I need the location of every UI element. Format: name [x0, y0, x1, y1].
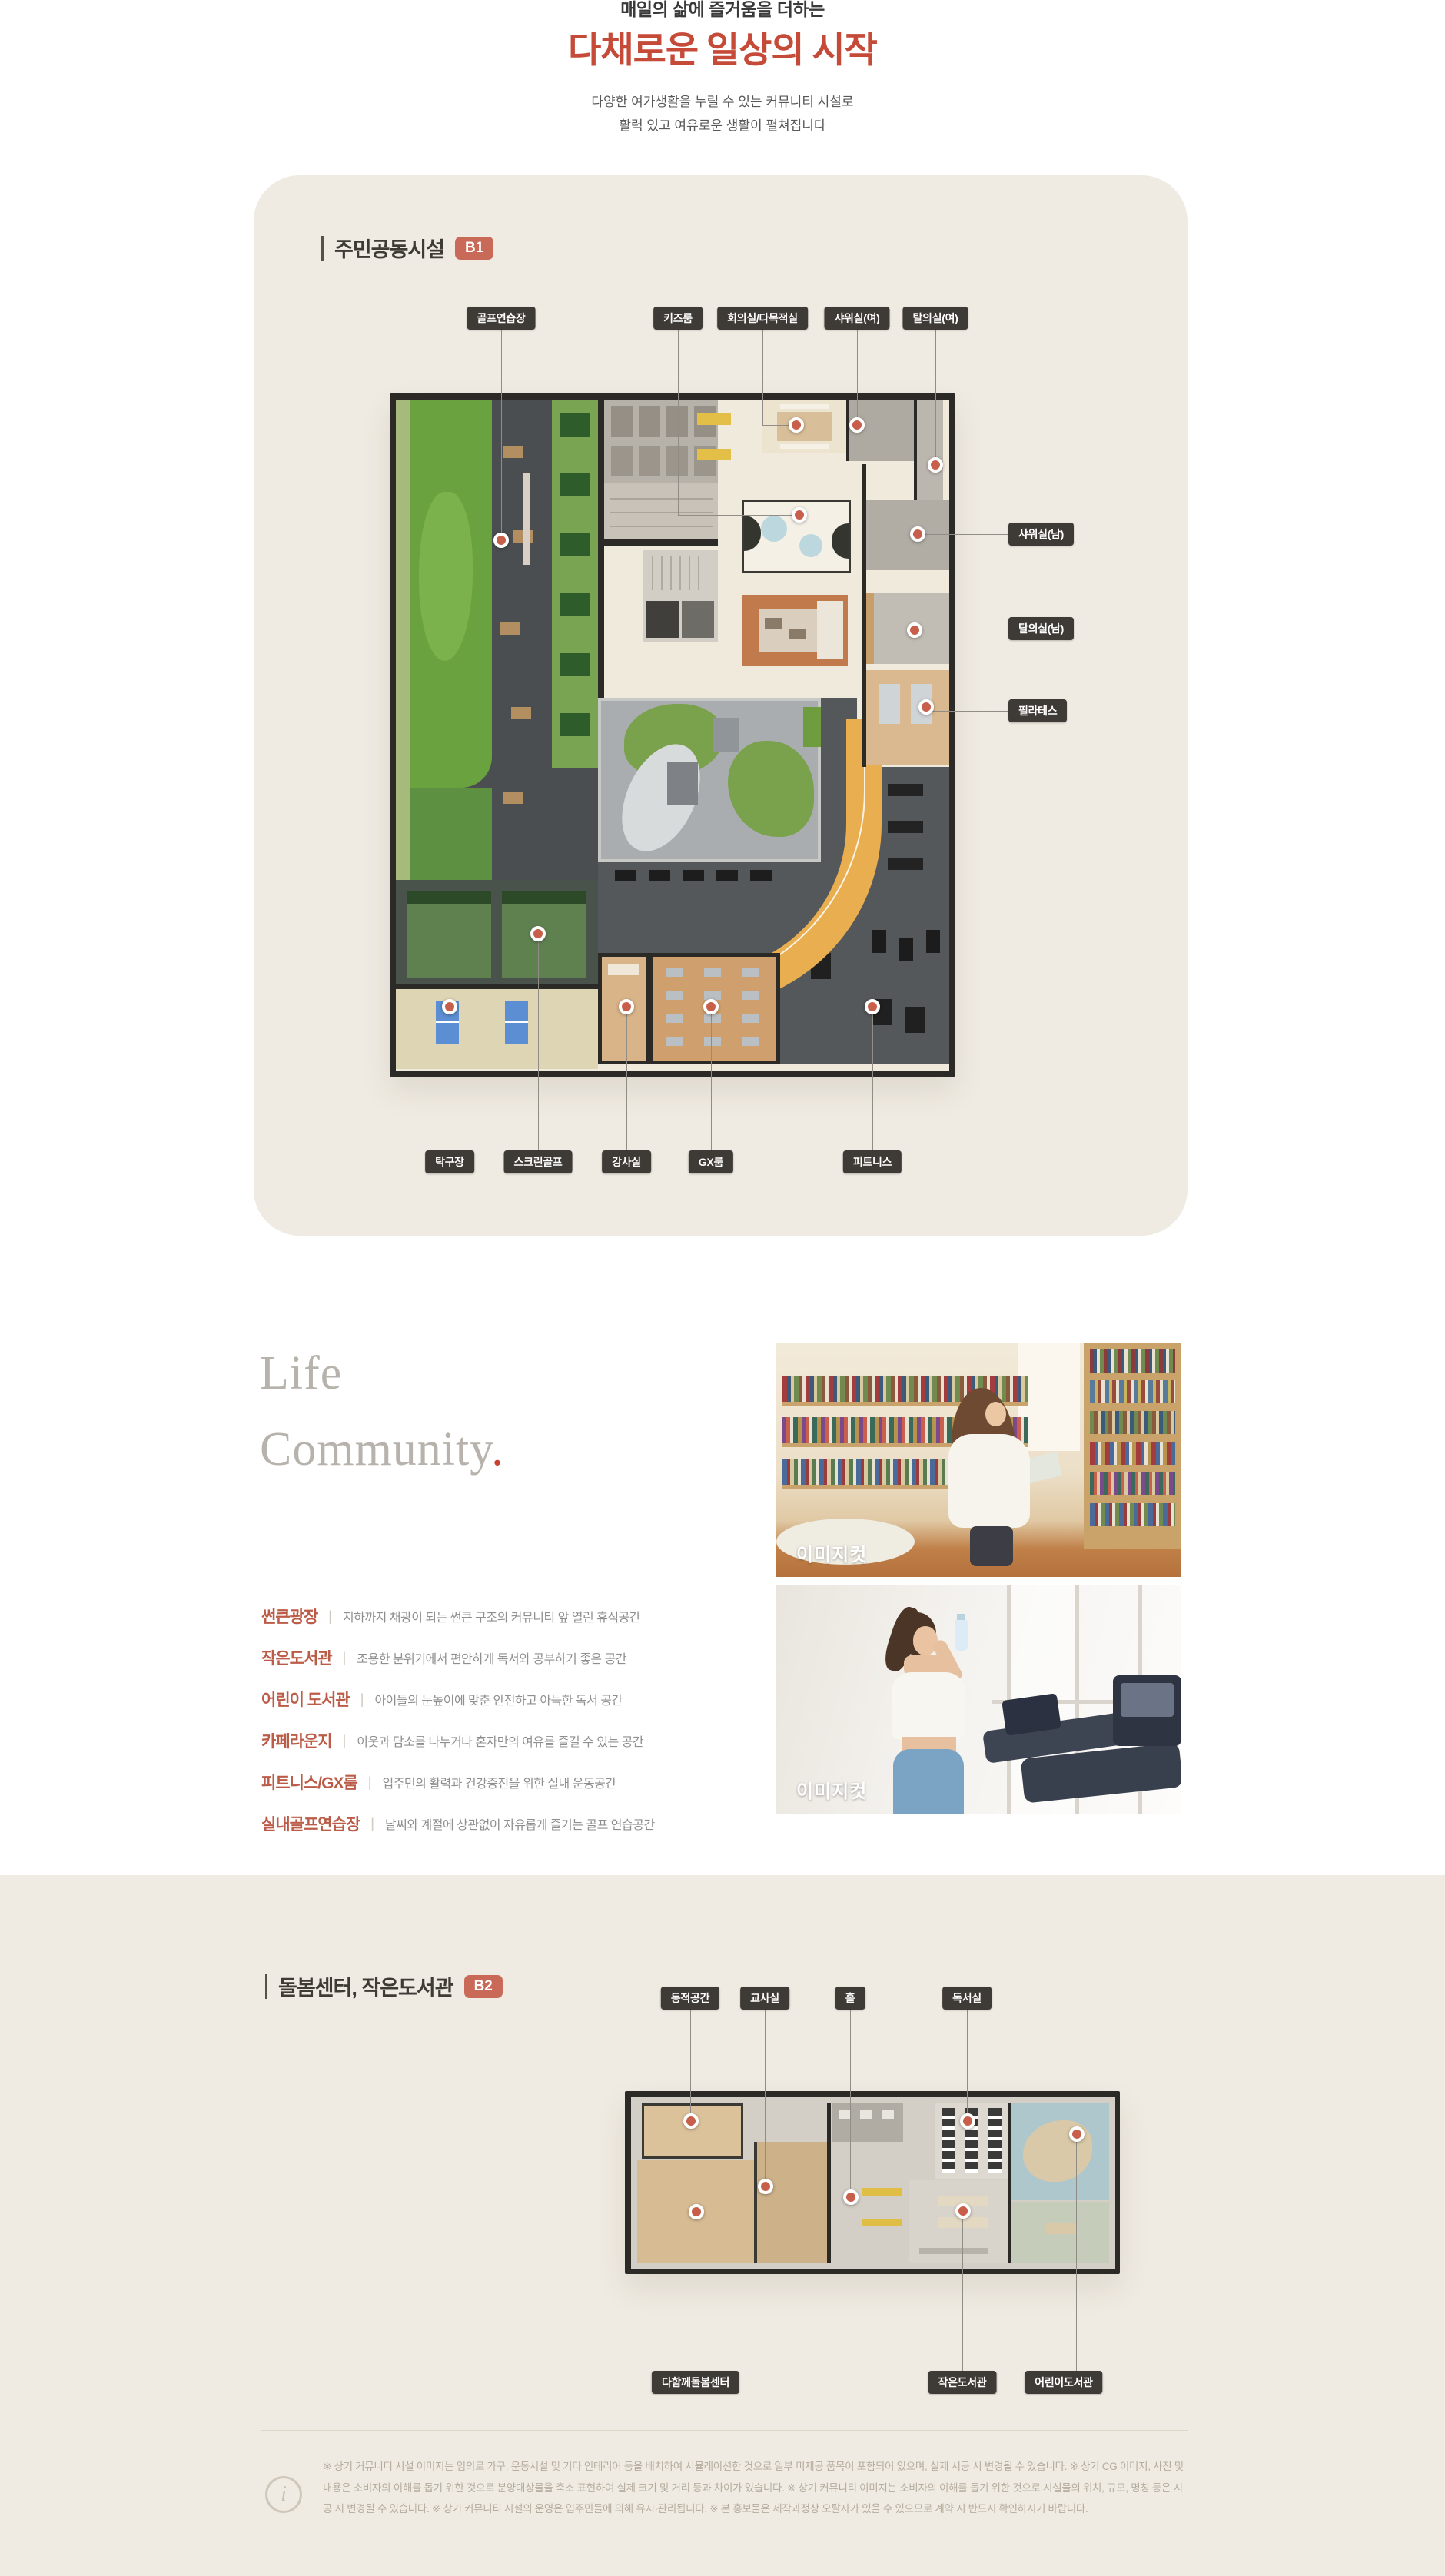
b2-small-library [909, 2180, 1008, 2263]
b1-gym-machine [905, 1007, 925, 1033]
photo-person-skirt [970, 1526, 1013, 1566]
leader-line [678, 327, 679, 515]
life-heading-line2: Community. [260, 1412, 504, 1488]
decor-shape [919, 2248, 988, 2254]
location-marker-locker-f [928, 457, 943, 473]
b1-pingpong-table [505, 1001, 528, 1044]
decor-shape [860, 2110, 872, 2119]
b1-tee-bay [560, 413, 590, 437]
life-community-heading: Life Community. [260, 1336, 504, 1488]
facility-list-item: 어린이 도서관|아이들의 눈높이에 맞춘 안전하고 아늑한 독서 공간 [261, 1678, 776, 1720]
leader-line [924, 534, 1008, 535]
life-heading-line1: Life [260, 1336, 504, 1412]
b1-pilates-room [866, 670, 949, 765]
decor-shape [666, 968, 683, 977]
b1-stair-core [643, 550, 718, 642]
gym-photo: 이미지컷 [776, 1585, 1181, 1814]
decor-shape [742, 1014, 759, 1023]
facility-description-list: 썬큰광장|지하까지 채광이 되는 썬큰 구조의 커뮤니티 앞 열린 휴식공간작은… [261, 1595, 776, 1844]
b1-elevator [646, 601, 679, 638]
b1-table-tennis-room [396, 984, 598, 1069]
facility-name: 작은도서관 [261, 1646, 332, 1669]
decor-shape [789, 629, 806, 639]
decor-shape [879, 684, 900, 724]
photo-caption: 이미지컷 [796, 1539, 867, 1566]
leader-line [765, 2007, 766, 2180]
facility-description: 입주민의 활력과 건강증진을 위한 실내 운동공간 [382, 1773, 616, 1791]
facility-list-item: 썬큰광장|지하까지 채광이 되는 썬큰 구조의 커뮤니티 앞 열린 휴식공간 [261, 1595, 776, 1637]
b1-gym-machine [888, 821, 923, 833]
location-marker-golf [493, 533, 509, 548]
b1-locker-line [610, 498, 713, 500]
b1-golf-mat [503, 792, 523, 804]
facility-list-item: 카페라운지|이웃과 담소를 나누거나 혼자만의 여유를 즐길 수 있는 공간 [261, 1720, 776, 1761]
b1-screen [407, 891, 491, 904]
b1-tee-bay [560, 713, 590, 736]
location-marker-hall [843, 2189, 859, 2205]
b1-meeting-room [762, 400, 846, 453]
header-subtitle-line1: 다양한 여가생활을 누릴 수 있는 커뮤니티 시설로 [0, 91, 1445, 115]
divider-bar: | [343, 1650, 347, 1666]
b1-play-rug [761, 516, 787, 542]
decor-shape [1090, 1472, 1175, 1495]
leader-line [626, 1013, 627, 1150]
leader-line [538, 940, 539, 1150]
decor-shape [666, 991, 683, 1000]
b2-floor-badge: B2 [464, 1975, 503, 1998]
decor-shape [988, 2108, 1002, 2173]
b1-locker-line [610, 526, 713, 527]
facility-description: 조용한 분위기에서 편안하게 독서와 공부하기 좋은 공간 [357, 1648, 626, 1667]
b1-golf-mat [511, 707, 531, 719]
location-marker-shower-m [910, 526, 925, 542]
photo-person-blouse [948, 1434, 1030, 1528]
b1-golf-mat [500, 622, 520, 635]
divider-bar: | [343, 1733, 347, 1749]
leader-line [711, 1013, 712, 1150]
leader-line [857, 327, 858, 420]
b2-crossing-mat [862, 2188, 902, 2196]
b1-tee-bay [560, 593, 590, 616]
divider-bar: | [360, 1691, 364, 1708]
location-marker-fitness [865, 999, 880, 1014]
location-marker-pilates [918, 699, 934, 715]
leader-line [967, 2007, 968, 2114]
b1-shower-stall [611, 446, 633, 476]
location-marker-screen-golf [530, 926, 546, 941]
facility-name: 썬큰광장 [261, 1605, 317, 1628]
b1-tee-bay [560, 653, 590, 676]
decor-shape [1090, 1503, 1175, 1526]
b1-play-structure [744, 516, 761, 551]
decor-shape [608, 964, 639, 975]
library-photo: 이미지컷 [776, 1343, 1181, 1577]
b1-section-title-text: 주민공동시설 [334, 233, 444, 263]
leader-line [762, 425, 792, 426]
b1-golf-bench [523, 473, 530, 565]
b2-toilets [832, 2103, 903, 2142]
decor-shape [1121, 1683, 1174, 1717]
b1-entry-mat [697, 413, 731, 425]
b2-crossing-mat [862, 2219, 902, 2226]
b2-wall [827, 2103, 831, 2263]
photo-caption: 이미지컷 [796, 1776, 867, 1803]
location-marker-meeting [789, 417, 804, 433]
decor-shape [1090, 1442, 1175, 1465]
b1-locker-room-f [917, 400, 943, 513]
leader-line [696, 2218, 696, 2371]
b1-shower-stall [639, 446, 660, 476]
leader-line [932, 711, 1008, 712]
b1-entry-mat [697, 449, 731, 460]
b2-floor-plan [625, 2091, 1120, 2274]
facility-name: 피트니스/GX룸 [261, 1771, 357, 1794]
b1-gym-machine [872, 930, 886, 953]
b1-shower-block [604, 400, 718, 483]
facility-name: 카페라운지 [261, 1729, 332, 1752]
footer-disclaimer: ※ 상기 커뮤니티 시설 이미지는 임의로 가구, 운동시설 및 기타 인테리어… [323, 2456, 1185, 2520]
b1-shower-stall [611, 406, 633, 437]
leader-line [762, 327, 763, 425]
b1-gym-machine [899, 938, 913, 961]
b1-locker-row [604, 483, 718, 539]
leader-line [872, 1013, 873, 1150]
b1-pingpong-net [505, 1021, 528, 1023]
leader-line [921, 629, 1008, 629]
leader-line [450, 1013, 450, 1150]
decor-shape [666, 1014, 683, 1023]
decor-shape [780, 444, 829, 449]
decor-shape [780, 404, 829, 409]
leader-line [501, 327, 502, 535]
leader-line [850, 2007, 851, 2191]
decor-shape [704, 1014, 721, 1023]
decor-shape [698, 556, 699, 590]
info-icon: i [265, 2476, 302, 2513]
decor-shape [839, 2110, 851, 2119]
page-title: 다채로운 일상의 시작 [0, 20, 1445, 73]
header-subtitle: 다양한 여가생활을 누릴 수 있는 커뮤니티 시설로 활력 있고 여유로운 생활… [0, 91, 1445, 138]
divider-bar: | [328, 1608, 332, 1625]
b1-gym-machine [888, 784, 923, 796]
b1-gym-machine [888, 858, 923, 870]
location-marker-care-center [689, 2204, 704, 2219]
decor-shape [742, 991, 759, 1000]
location-marker-kids [792, 507, 807, 523]
b1-gym-machine [926, 930, 940, 953]
leader-line [678, 515, 793, 516]
b1-tee-bay [560, 533, 590, 556]
decor-shape [1046, 2223, 1078, 2234]
location-marker-locker-m [907, 622, 922, 638]
b1-play-rug [799, 534, 822, 557]
b1-tee-bay [560, 473, 590, 496]
facility-description: 날씨와 계절에 상관없이 자유롭게 즐기는 골프 연습공간 [385, 1814, 655, 1833]
b1-section-title: 주민공동시설 B1 [321, 233, 493, 263]
location-marker-gx [703, 999, 719, 1014]
b1-screen [502, 891, 586, 904]
decor-shape [704, 991, 721, 1000]
location-marker-pingpong [442, 999, 457, 1014]
b2-section-title-text: 돌봄센터, 작은도서관 [278, 1971, 453, 2001]
decor-shape [704, 968, 721, 977]
b2-children-library [1011, 2103, 1109, 2200]
b1-pingpong-net [436, 1021, 459, 1023]
title-bar [321, 236, 324, 261]
page-root: 매일의 삶에 즐거움을 더하는 다채로운 일상의 시작 다양한 여가생활을 누릴… [0, 0, 1445, 2576]
decor-shape [1090, 1349, 1175, 1373]
b1-screen-golf-booth [407, 891, 491, 978]
b1-elevator [682, 601, 714, 638]
location-marker-children-library [1069, 2126, 1085, 2142]
decor-shape [742, 968, 759, 977]
decor-shape [942, 2108, 955, 2173]
divider-bar: | [368, 1774, 372, 1791]
life-heading-community: Community [260, 1423, 491, 1476]
b1-cafe-lounge [742, 595, 848, 666]
photo-person-top [892, 1672, 965, 1740]
b1-shower-room-m [866, 500, 949, 570]
b1-shower-stall [639, 406, 660, 437]
header-subtitle-line2: 활력 있고 여유로운 생활이 펼쳐집니다 [0, 115, 1445, 138]
treadmill-console [1113, 1675, 1181, 1746]
leader-line [935, 327, 936, 460]
photo-person-face [985, 1402, 1006, 1426]
decor-shape [882, 2110, 894, 2119]
b1-wall [604, 539, 718, 546]
decor-shape [742, 1037, 759, 1046]
b1-floor-badge: B1 [455, 237, 493, 260]
decor-shape [670, 556, 672, 590]
decor-shape [661, 556, 663, 590]
decor-shape [652, 556, 653, 590]
facility-list-item: 피트니스/GX룸|입주민의 활력과 건강증진을 위한 실내 운동공간 [261, 1761, 776, 1803]
footer-divider [261, 2430, 1188, 2431]
water-bottle [955, 1618, 968, 1651]
decor-shape [866, 593, 874, 664]
b2-section-title: 돌봄센터, 작은도서관 B2 [265, 1971, 503, 2001]
b1-play-structure [832, 523, 849, 559]
leader-line [962, 2217, 963, 2371]
decor-shape [1090, 1380, 1175, 1403]
decor-shape [689, 556, 690, 590]
title-bar [265, 1974, 267, 1999]
decor-shape [704, 1037, 721, 1046]
decor-shape [957, 1614, 965, 1620]
photo-person-leggings [893, 1749, 964, 1814]
location-marker-teacher [758, 2179, 773, 2194]
leader-line [690, 2007, 691, 2114]
facility-list-item: 작은도서관|조용한 분위기에서 편안하게 독서와 공부하기 좋은 공간 [261, 1637, 776, 1678]
b1-golf-mat [503, 446, 523, 458]
location-marker-shower-f [849, 417, 865, 433]
facility-description: 이웃과 담소를 나누거나 혼자만의 여유를 즐길 수 있는 공간 [357, 1731, 643, 1750]
decor-shape [1090, 1411, 1175, 1434]
facility-description: 아이들의 눈높이에 맞춘 안전하고 아늑한 독서 공간 [374, 1690, 622, 1708]
facility-list-item: 실내골프연습장|날씨와 계절에 상관없이 자유롭게 즐기는 골프 연습공간 [261, 1803, 776, 1844]
decor-shape [666, 1037, 683, 1046]
b1-floor-plan [390, 393, 955, 1077]
b1-cafe-sofa [817, 601, 843, 659]
b1-shower-stall [666, 406, 688, 437]
decor-shape [679, 556, 681, 590]
header-eyebrow: 매일의 삶에 즐거움을 더하는 [0, 0, 1445, 21]
decor-shape [938, 2217, 988, 2228]
b1-meeting-table [777, 412, 832, 441]
leader-line [1076, 2140, 1077, 2371]
divider-bar: | [370, 1816, 374, 1832]
location-marker-study [960, 2113, 975, 2129]
b2-children-library-annex [1011, 2202, 1109, 2263]
b1-locker-line [610, 512, 713, 513]
facility-name: 실내골프연습장 [261, 1812, 360, 1835]
location-marker-activity [683, 2113, 699, 2129]
facility-name: 어린이 도서관 [261, 1688, 350, 1711]
decor-shape [765, 618, 782, 629]
b2-activity-room [642, 2103, 743, 2159]
location-marker-instructor [619, 999, 634, 1014]
facility-description: 지하까지 채광이 되는 썬큰 구조의 커뮤니티 앞 열린 휴식공간 [343, 1607, 640, 1625]
life-heading-dot: . [491, 1423, 504, 1476]
location-marker-small-library [955, 2203, 971, 2219]
b1-shower-stall [666, 446, 688, 476]
